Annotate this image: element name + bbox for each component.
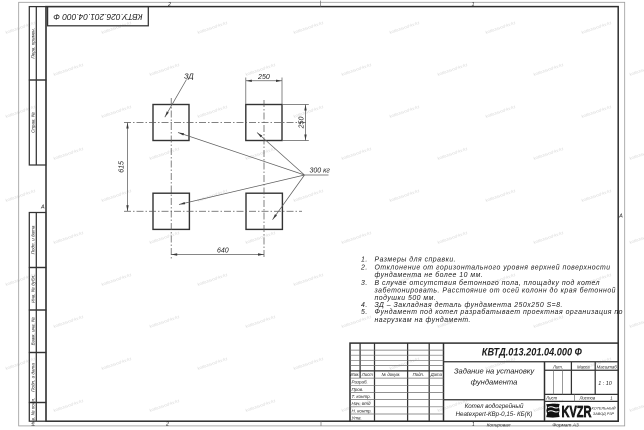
svg-text:Лит.: Лит. <box>552 364 563 369</box>
svg-text:Масса: Масса <box>577 364 590 369</box>
svg-text:2.: 2. <box>360 264 368 271</box>
svg-text:забетонировать. Расстояние от: забетонировать. Расстояние от осей колон… <box>374 286 617 294</box>
svg-text:фундамента не более 10 мм.: фундамента не более 10 мм. <box>375 271 484 279</box>
svg-text:Котел водогрейный: Котел водогрейный <box>465 403 524 410</box>
svg-text:Подп.: Подп. <box>413 372 424 377</box>
svg-text:Справ. №: Справ. № <box>31 112 36 133</box>
svg-text:КВТУ.026.201.04.000 Ф: КВТУ.026.201.04.000 Ф <box>53 12 143 22</box>
svg-text:Дата: Дата <box>430 372 443 377</box>
svg-text:1 : 10: 1 : 10 <box>598 381 612 387</box>
svg-text:Инв. № подл.: Инв. № подл. <box>31 398 36 427</box>
svg-text:Масштаб: Масштаб <box>597 364 618 369</box>
svg-text:КОТЕЛЬНЫЙ: КОТЕЛЬНЫЙ <box>592 407 616 411</box>
svg-text:ЗД – Закладная деталь фундамен: ЗД – Закладная деталь фундамента 250х250… <box>375 301 563 309</box>
svg-text:А: А <box>618 214 623 220</box>
svg-text:Н. контр.: Н. контр. <box>352 408 372 413</box>
svg-text:300 кг: 300 кг <box>310 167 331 174</box>
svg-text:ЗАВОД РЗР: ЗАВОД РЗР <box>593 412 615 416</box>
svg-text:640: 640 <box>217 247 229 254</box>
svg-text:Листов: Листов <box>578 396 595 401</box>
svg-text:615: 615 <box>118 161 125 173</box>
svg-text:В случае отсутствия бетонного: В случае отсутствия бетонного пола, площ… <box>375 279 601 287</box>
svg-text:5.: 5. <box>361 309 368 316</box>
svg-text:Изм.: Изм. <box>350 372 359 377</box>
svg-text:Размеры для справки.: Размеры для справки. <box>375 256 457 264</box>
svg-text:250: 250 <box>298 117 305 130</box>
svg-text:Копировал: Копировал <box>487 422 511 428</box>
svg-text:250: 250 <box>257 74 270 81</box>
svg-text:КВТД.013.201.04.000 Ф: КВТД.013.201.04.000 Ф <box>482 347 582 359</box>
svg-text:1: 1 <box>472 422 475 428</box>
svg-text:Нач. отд: Нач. отд <box>352 401 371 406</box>
svg-text:подушки 500 мм.: подушки 500 мм. <box>375 294 437 302</box>
svg-text:Инв. № дубл.: Инв. № дубл. <box>31 275 36 303</box>
svg-text:нагрузкам на фундамент.: нагрузкам на фундамент. <box>375 316 471 324</box>
svg-text:2: 2 <box>165 422 169 428</box>
svg-text:Перв. примен.: Перв. примен. <box>31 28 36 59</box>
svg-text:Взам. инв. №: Взам. инв. № <box>31 317 36 345</box>
svg-text:№ докум.: № докум. <box>382 372 401 377</box>
svg-text:Подп. и дата: Подп. и дата <box>31 363 36 392</box>
svg-text:3.: 3. <box>361 280 368 287</box>
svg-text:Лист: Лист <box>361 372 373 377</box>
svg-text:Подп. и дата: Подп. и дата <box>31 225 36 254</box>
svg-text:Пров.: Пров. <box>352 387 364 392</box>
svg-text:Лист: Лист <box>545 396 557 401</box>
svg-text:Задание на установку: Задание на установку <box>454 367 536 376</box>
svg-text:Разраб.: Разраб. <box>352 380 368 385</box>
svg-text:1.: 1. <box>361 257 368 264</box>
svg-text:фундамента: фундамента <box>471 378 518 387</box>
svg-text:Утв.: Утв. <box>352 416 362 421</box>
svg-text:Отклонение от горизонтального: Отклонение от горизонтального уровня вер… <box>375 263 611 271</box>
svg-text:1: 1 <box>472 2 475 8</box>
svg-text:А: А <box>40 205 45 211</box>
svg-text:KVZR: KVZR <box>562 404 592 421</box>
svg-text:Формат А3: Формат А3 <box>552 422 579 428</box>
svg-text:4.: 4. <box>361 302 368 309</box>
svg-text:Т. контр.: Т. контр. <box>352 394 371 399</box>
svg-text:Heatexpert-КВр-0,15- КБ(К): Heatexpert-КВр-0,15- КБ(К) <box>456 411 533 418</box>
svg-text:ЗД: ЗД <box>184 72 194 81</box>
svg-text:Фундамент под котел разрабатыв: Фундамент под котел разрабатывает проект… <box>375 308 624 316</box>
svg-text:2: 2 <box>167 2 171 8</box>
